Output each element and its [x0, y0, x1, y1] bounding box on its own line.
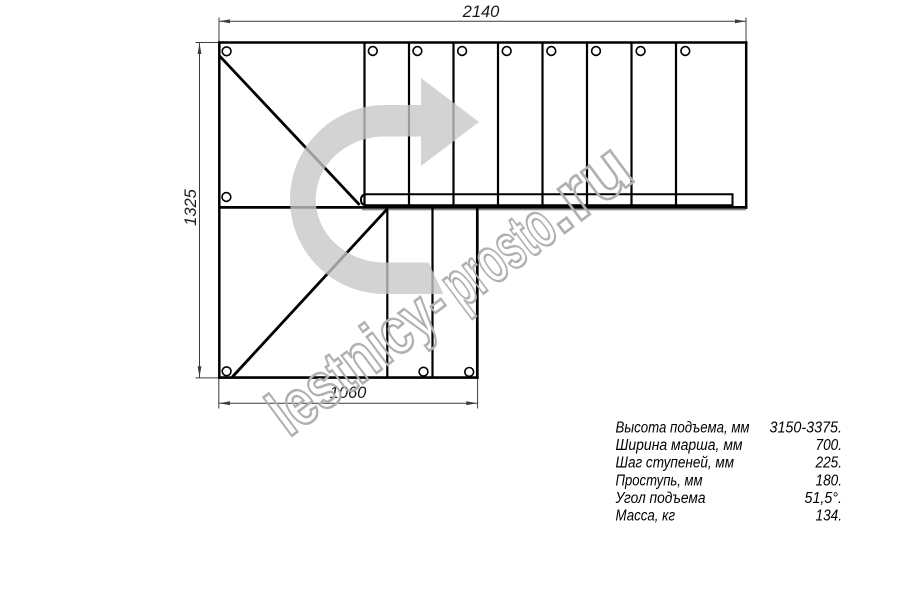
svg-text:Ширина марша, мм: Ширина марша, мм [616, 437, 743, 454]
svg-text:51,5°.: 51,5°. [805, 490, 843, 507]
svg-text:180.: 180. [816, 472, 843, 489]
svg-text:3150-3375.: 3150-3375. [770, 420, 843, 437]
svg-text:225.: 225. [815, 455, 842, 472]
svg-text:Проступь, мм: Проступь, мм [616, 472, 703, 489]
svg-text:Масса, кг: Масса, кг [616, 508, 676, 525]
svg-text:2140: 2140 [462, 3, 501, 21]
svg-text:Высота подъема, мм: Высота подъема, мм [616, 420, 750, 437]
svg-text:700.: 700. [816, 437, 843, 454]
svg-text:Шаг ступеней, мм: Шаг ступеней, мм [616, 455, 735, 472]
svg-text:1325: 1325 [182, 188, 200, 226]
svg-text:134.: 134. [816, 508, 843, 525]
svg-text:Угол подъема: Угол подъема [615, 490, 706, 507]
